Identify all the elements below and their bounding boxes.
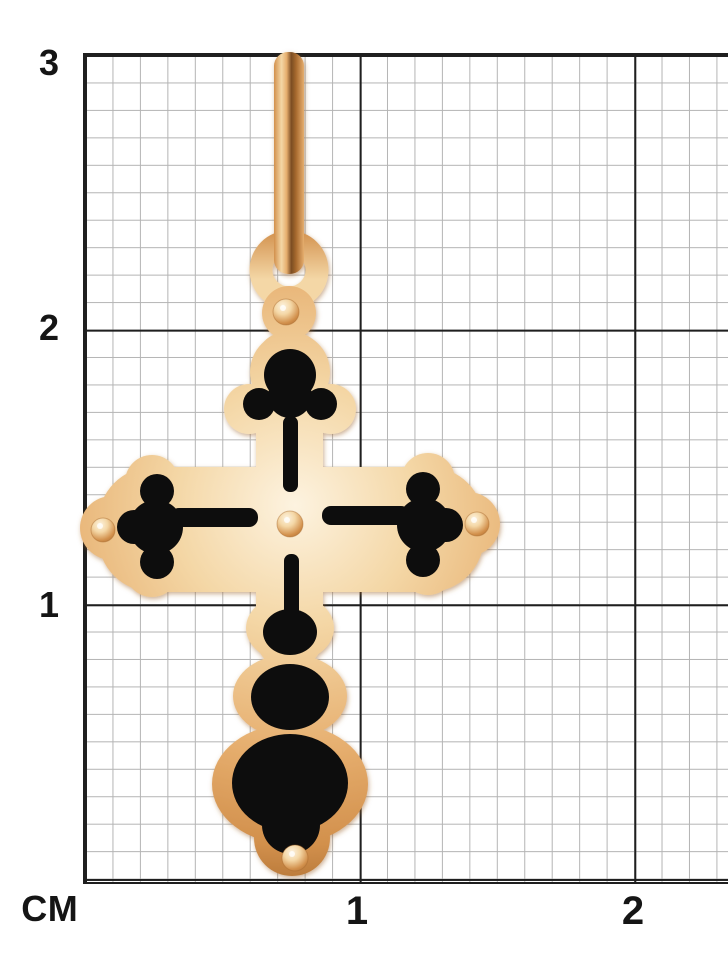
- enamel-inlays: [117, 349, 463, 854]
- cross-pendant-image: [0, 0, 728, 970]
- product-photo-stage: 3 2 1 СМ 1 2: [0, 0, 728, 970]
- suspension-wire: [274, 52, 304, 274]
